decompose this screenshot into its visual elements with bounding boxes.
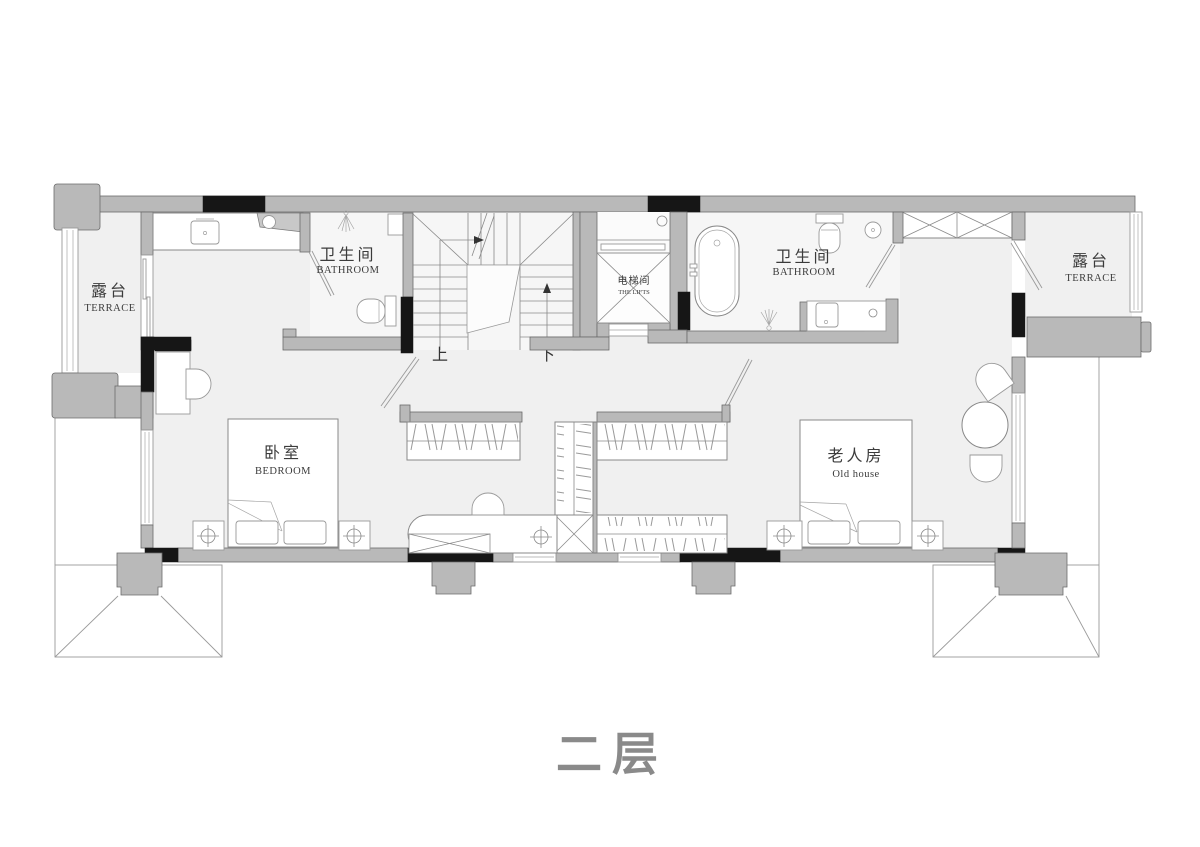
terrace-right-window xyxy=(1130,212,1142,312)
terrace-left-label-en: TERRACE xyxy=(84,303,135,314)
wardrobe xyxy=(597,515,727,553)
lift-cab xyxy=(597,253,670,323)
wardrobe xyxy=(597,422,727,460)
wardrobe xyxy=(407,422,520,460)
bathroom-left-label-en: BATHROOM xyxy=(317,265,380,276)
basin-icon xyxy=(263,216,276,229)
elder-room-window xyxy=(1012,393,1025,523)
floor-plan-svg: 露台 TERRACE xyxy=(0,0,1200,847)
wall-black-segment xyxy=(155,340,191,351)
corner-column xyxy=(54,184,100,230)
pilaster xyxy=(995,553,1067,595)
pillow xyxy=(858,521,900,544)
bathtub-icon xyxy=(690,226,739,316)
page-title: 二层 xyxy=(556,727,668,781)
pilaster xyxy=(692,562,735,594)
elder-room-label-en: Old house xyxy=(832,469,879,480)
wardrobe-vertical xyxy=(555,422,593,553)
vanity-counter xyxy=(153,213,303,250)
nightstand xyxy=(193,521,224,550)
terrace-left-wall xyxy=(52,373,118,418)
bathroom-right-label-zh: 卫生间 xyxy=(775,248,832,266)
round-table xyxy=(962,402,1008,448)
wall-black-segment xyxy=(1012,293,1025,337)
bedroom-label-zh: 卧室 xyxy=(264,444,302,462)
nightstand xyxy=(339,521,370,550)
terrace-left-window xyxy=(62,228,78,373)
lift-shelf xyxy=(601,244,665,250)
pilaster xyxy=(117,553,162,595)
chair xyxy=(970,455,1002,482)
nightstand xyxy=(912,521,943,550)
bedroom-left-window xyxy=(141,430,153,525)
top-wall-black-segment xyxy=(203,196,265,212)
bed xyxy=(800,420,912,547)
wall-black-segment xyxy=(141,337,154,392)
stair-up-label: 上 xyxy=(432,346,448,364)
terrace-right-label-en: TERRACE xyxy=(1065,273,1116,284)
desk-chair xyxy=(186,369,211,399)
pillow xyxy=(236,521,278,544)
pillow xyxy=(808,521,850,544)
pilaster xyxy=(432,562,475,594)
elder-room-label-zh: 老人房 xyxy=(827,447,884,465)
top-wall-black-segment xyxy=(648,196,700,212)
lift-label-zh: 电梯间 xyxy=(618,274,651,287)
terrace-sliding-door xyxy=(141,255,153,337)
bed xyxy=(228,419,338,547)
basin-icon xyxy=(865,222,881,238)
nightstand xyxy=(767,521,802,550)
lift-door-threshold xyxy=(609,324,648,336)
lift-label-en: THE LIFTS xyxy=(618,289,650,296)
toilet-icon xyxy=(816,214,843,253)
bathroom-left-label-zh: 卫生间 xyxy=(319,246,376,264)
bedroom-label-en: BEDROOM xyxy=(255,466,311,477)
floor-plan-page: 露台 TERRACE xyxy=(0,0,1200,847)
terrace-left-label-zh: 露台 xyxy=(91,282,129,300)
wardrobe-top xyxy=(893,212,1025,243)
toilet-icon xyxy=(357,296,396,326)
terrace-right-label-zh: 露台 xyxy=(1072,252,1110,270)
pillow xyxy=(284,521,326,544)
bottom-wall xyxy=(117,548,1067,595)
bathroom-right-label-en: BATHROOM xyxy=(773,267,836,278)
sink-icon xyxy=(191,221,219,244)
